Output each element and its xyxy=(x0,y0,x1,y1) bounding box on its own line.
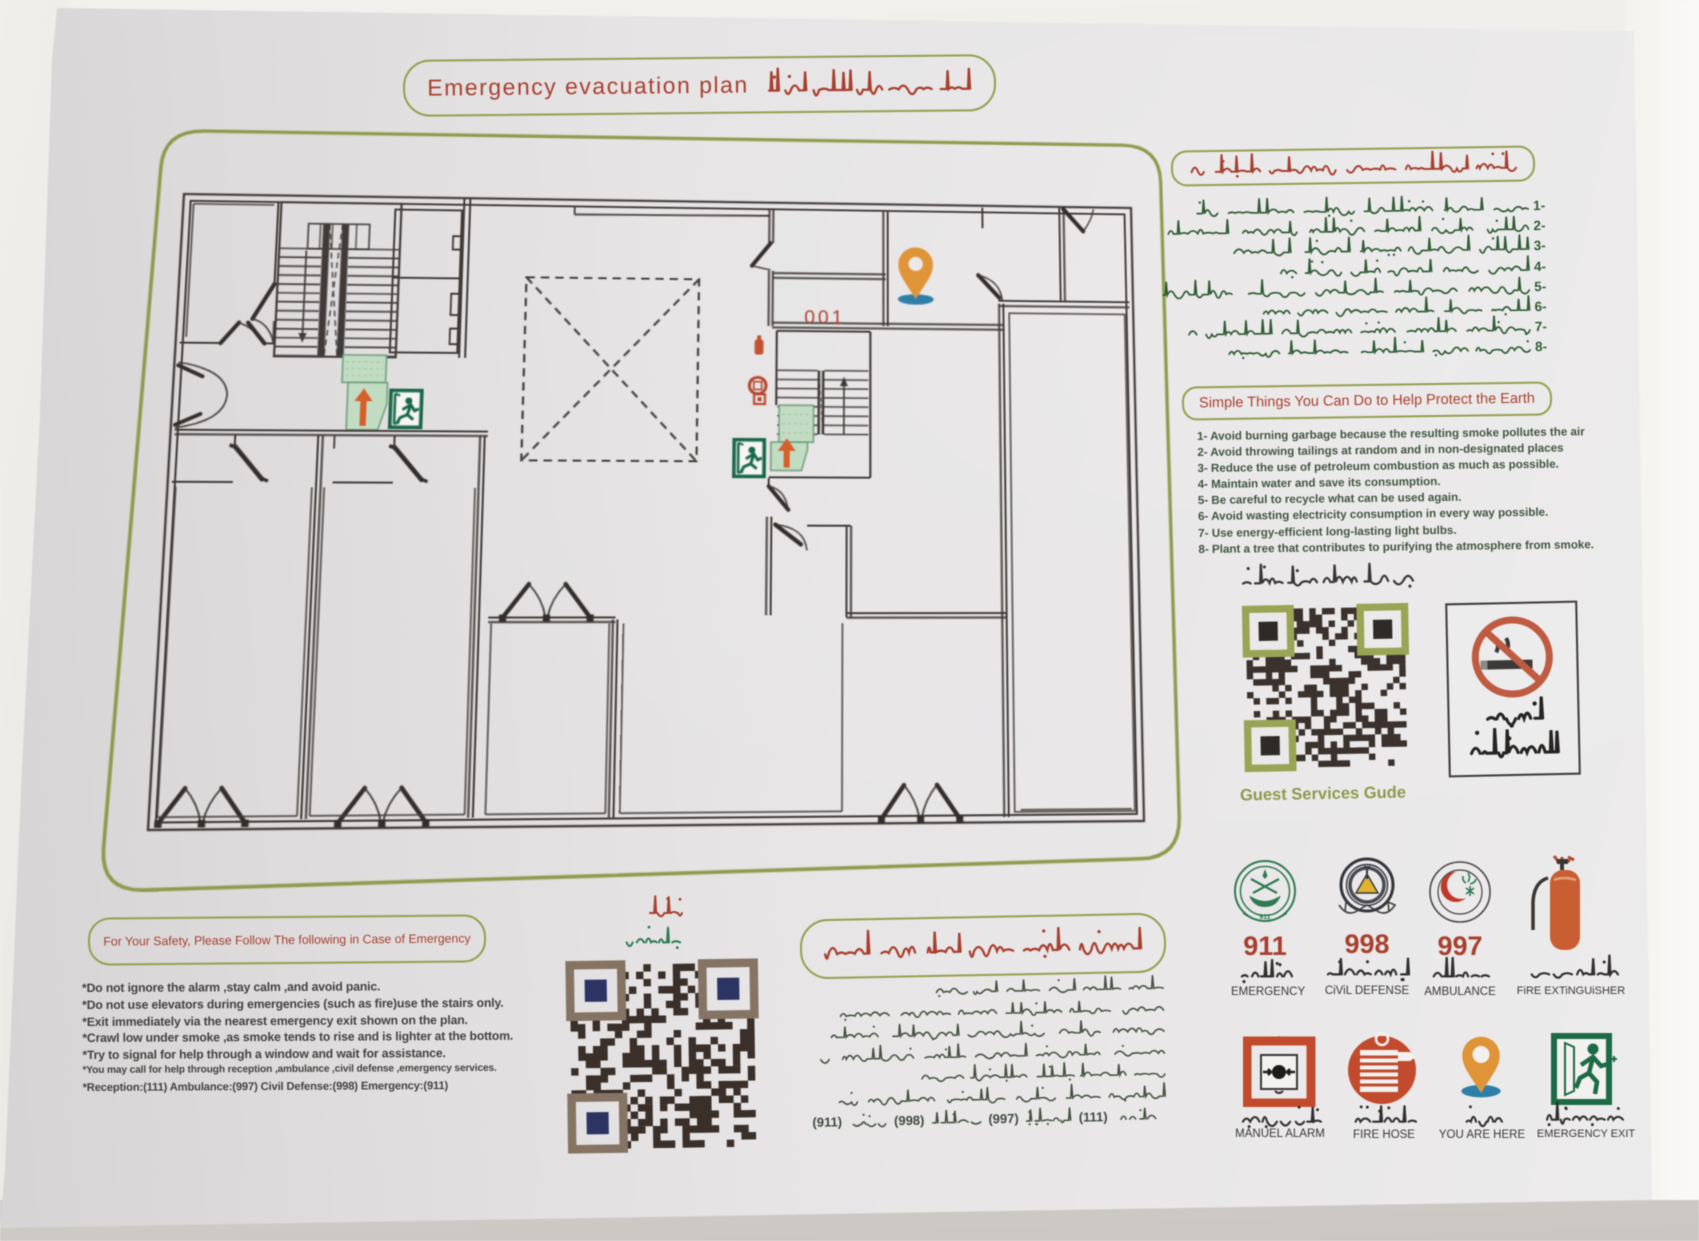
svg-text:001: 001 xyxy=(804,307,845,329)
svg-text:911: 911 xyxy=(1259,914,1270,921)
